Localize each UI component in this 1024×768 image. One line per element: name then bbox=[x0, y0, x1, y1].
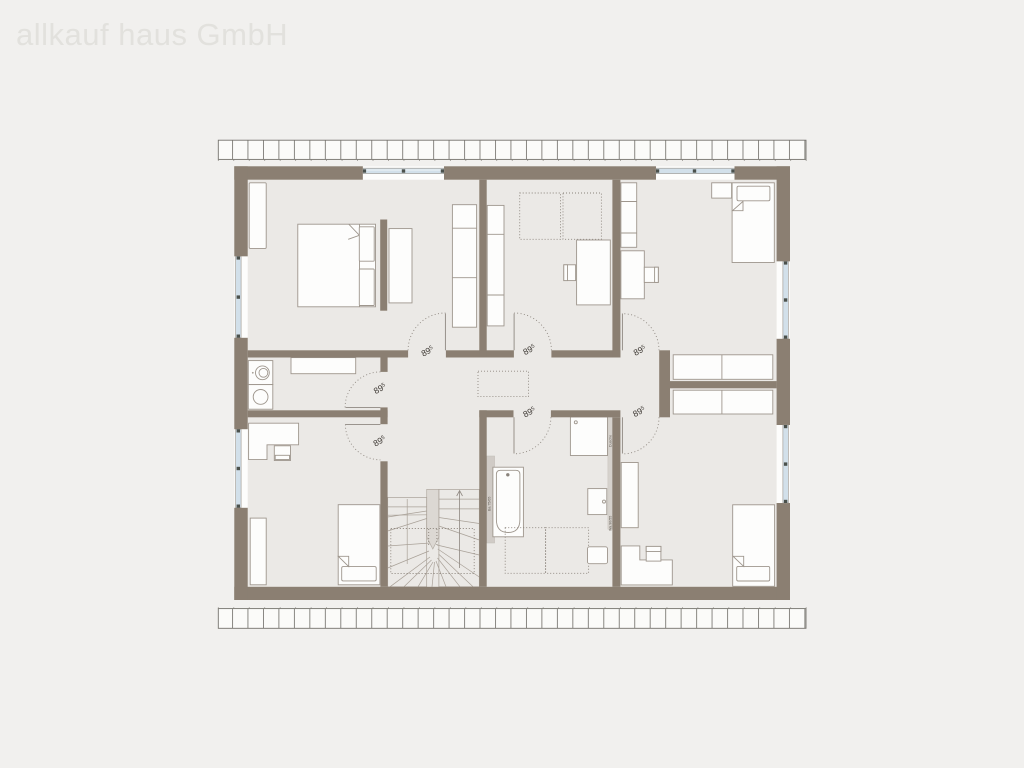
svg-text:Wa.90/55: Wa.90/55 bbox=[608, 516, 612, 531]
svg-text:allkauf haus GmbH: allkauf haus GmbH bbox=[16, 17, 288, 52]
svg-text:Ba.75/65: Ba.75/65 bbox=[487, 497, 491, 511]
svg-text:Dusche: Dusche bbox=[608, 435, 612, 447]
